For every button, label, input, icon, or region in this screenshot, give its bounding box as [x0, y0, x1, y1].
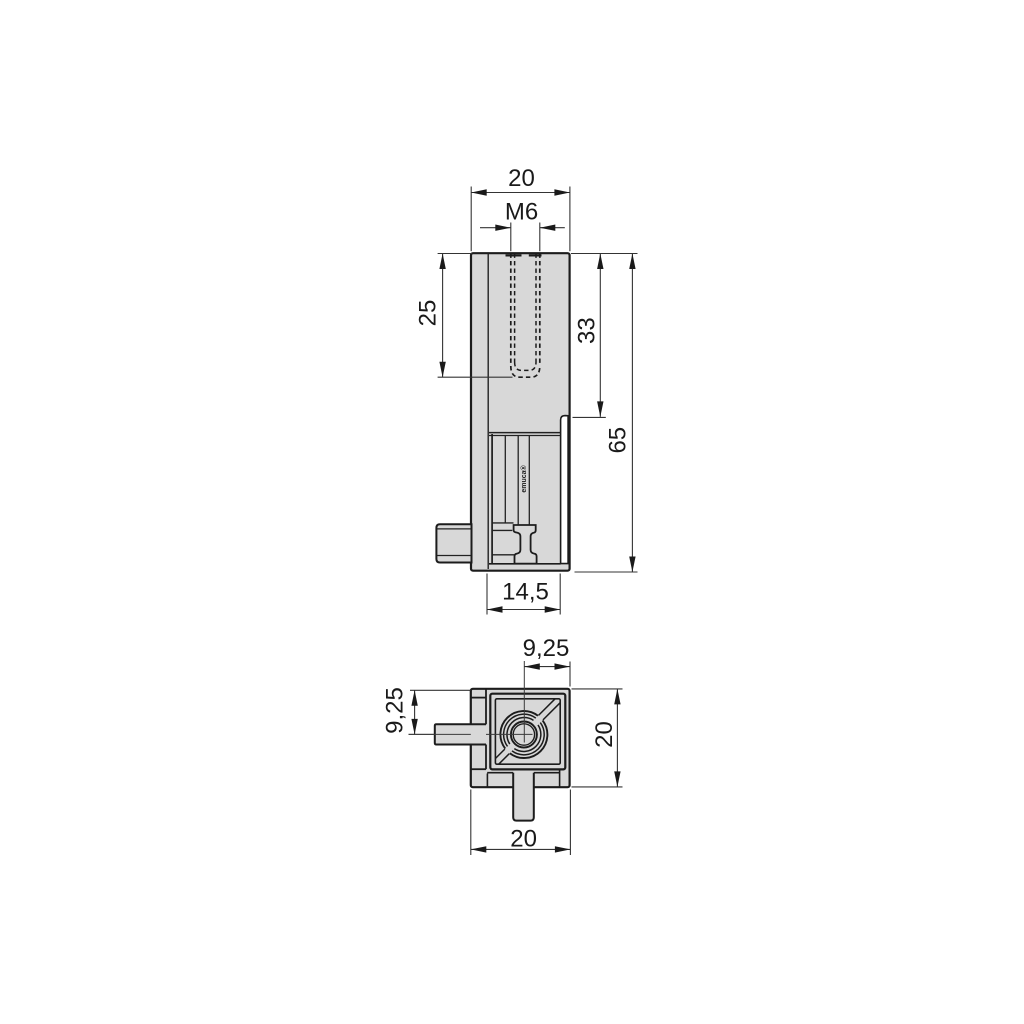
- svg-text:65: 65: [605, 427, 632, 454]
- svg-text:9,25: 9,25: [382, 687, 409, 734]
- svg-text:20: 20: [510, 826, 537, 853]
- svg-text:14,5: 14,5: [502, 579, 549, 606]
- svg-text:33: 33: [574, 317, 601, 344]
- svg-text:20: 20: [508, 165, 535, 192]
- svg-text:M6: M6: [505, 198, 538, 225]
- svg-text:emuca®: emuca®: [520, 464, 528, 492]
- svg-text:20: 20: [591, 721, 618, 748]
- svg-text:25: 25: [415, 300, 442, 327]
- svg-text:9,25: 9,25: [523, 635, 570, 662]
